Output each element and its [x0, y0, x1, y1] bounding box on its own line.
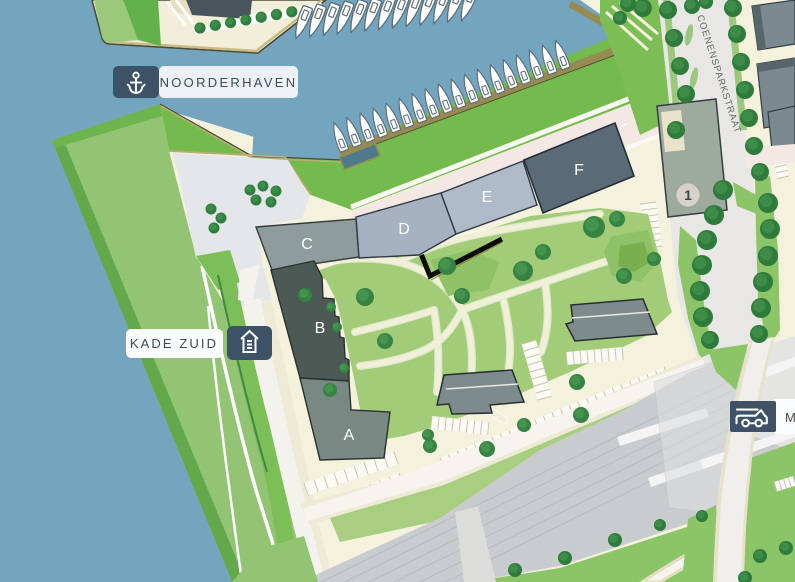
svg-text:B: B	[315, 320, 326, 337]
svg-text:E: E	[482, 189, 493, 206]
svg-text:1: 1	[684, 187, 692, 203]
svg-text:C: C	[301, 236, 313, 253]
svg-text:F: F	[574, 162, 584, 179]
svg-text:KADE ZUID: KADE ZUID	[130, 336, 218, 351]
svg-text:M: M	[785, 410, 795, 425]
svg-text:NOORDERHAVEN: NOORDERHAVEN	[160, 75, 298, 90]
svg-text:A: A	[344, 427, 355, 444]
svg-text:D: D	[398, 221, 410, 238]
